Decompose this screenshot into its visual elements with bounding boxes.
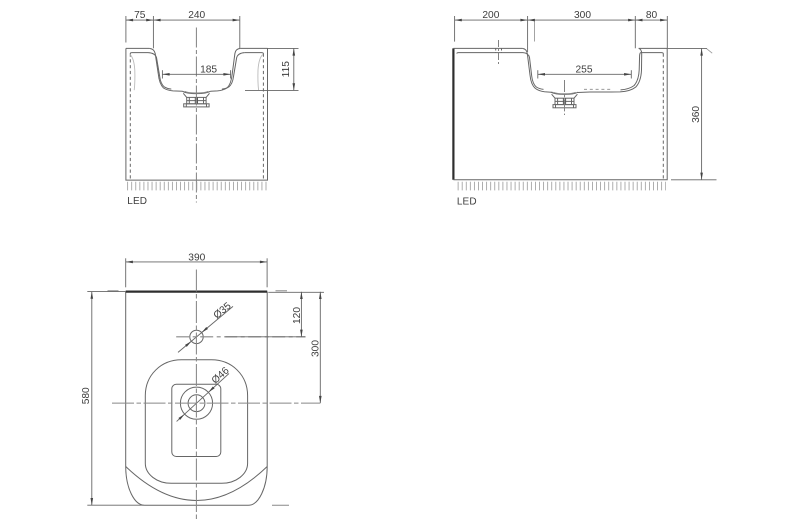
svg-text:390: 390 — [188, 253, 205, 264]
svg-text:Ø35: Ø35 — [212, 300, 234, 321]
svg-text:300: 300 — [574, 10, 591, 21]
svg-text:80: 80 — [646, 10, 658, 21]
svg-text:185: 185 — [200, 65, 217, 76]
svg-text:240: 240 — [188, 10, 205, 21]
svg-text:120: 120 — [292, 307, 303, 324]
svg-text:360: 360 — [691, 106, 702, 123]
svg-text:115: 115 — [281, 61, 292, 78]
svg-text:200: 200 — [482, 10, 499, 21]
svg-text:Ø46: Ø46 — [210, 365, 232, 386]
svg-text:300: 300 — [311, 340, 322, 357]
svg-text:LED: LED — [457, 196, 477, 207]
svg-text:255: 255 — [576, 65, 593, 76]
svg-text:580: 580 — [81, 387, 92, 404]
svg-text:LED: LED — [127, 196, 147, 207]
svg-text:75: 75 — [134, 10, 146, 21]
